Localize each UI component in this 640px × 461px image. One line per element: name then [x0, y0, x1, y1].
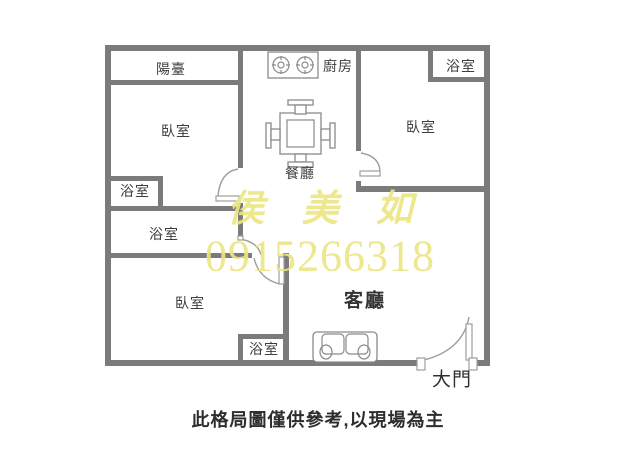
room-label-living: 客廳 [344, 286, 386, 313]
room-label-bedroom-top-left: 臥室 [161, 121, 191, 141]
sofa-icon [313, 332, 377, 362]
room-label-bathroom-bottom: 浴室 [249, 339, 279, 359]
floor-plan: 陽臺 廚房 浴室 臥室 臥室 餐廳 浴室 浴室 臥室 浴室 客廳 大門 侯 美 … [0, 0, 640, 461]
door-bedroom-right [360, 153, 380, 176]
watermark-phone: 0915266318 [205, 231, 435, 282]
stove-icon [268, 52, 318, 78]
room-label-bathroom-top-right: 浴室 [446, 56, 476, 76]
room-label-bathroom-mid-left: 浴室 [149, 224, 179, 244]
room-label-bedroom-bottom-left: 臥室 [175, 293, 205, 313]
room-label-bathroom-left: 浴室 [120, 181, 150, 201]
disclaimer-text: 此格局圖僅供參考,以現場為主 [192, 406, 445, 432]
main-door-label: 大門 [432, 365, 472, 392]
dining-table-icon [266, 100, 335, 167]
room-label-bedroom-right: 臥室 [406, 117, 436, 137]
room-label-balcony: 陽臺 [156, 59, 186, 79]
watermark-agent-name: 侯 美 如 [227, 178, 427, 232]
main-entry-door [417, 317, 477, 370]
room-label-kitchen: 廚房 [323, 56, 353, 76]
